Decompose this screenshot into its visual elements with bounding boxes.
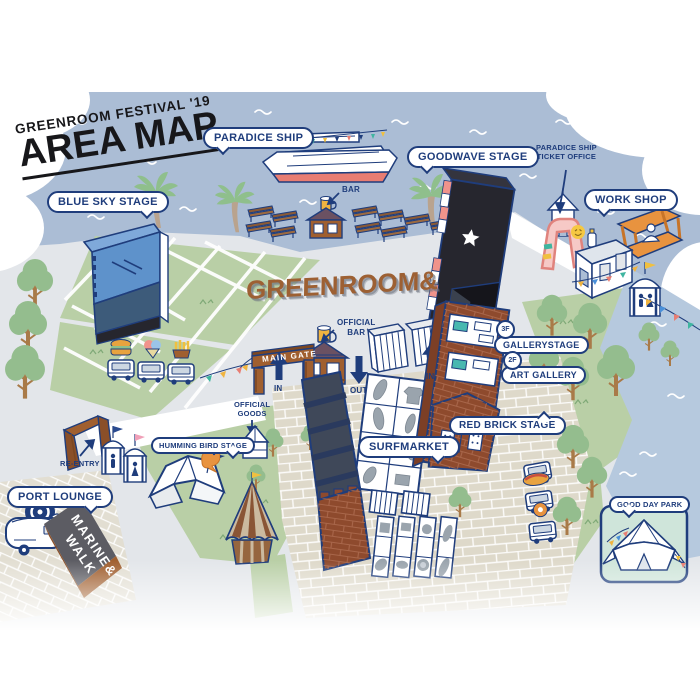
- label-paradice-ship: PARADICE SHIP: [203, 127, 314, 149]
- smiley-icon: [571, 225, 585, 239]
- area-map: GREENROOM FESTIVAL '19 AREA MAP BLUE SKY…: [0, 0, 700, 700]
- label-red-brick-stage: RED BRICK STAGE: [449, 416, 566, 435]
- label-re-entry: RE-ENTRY: [60, 459, 100, 468]
- label-good-day-park: GOOD DAY PARK: [609, 496, 690, 513]
- label-port-lounge: PORT LOUNGE: [7, 486, 113, 508]
- label-gate-out: OUT: [350, 386, 368, 396]
- label-bar: BAR: [342, 185, 360, 195]
- badge-3f: 3F: [496, 320, 515, 339]
- label-goodwave-stage: GOODWAVE STAGE: [407, 146, 539, 168]
- label-ticket-office: PARADICE SHIP TICKET OFFICE: [536, 143, 597, 161]
- blue-sky-stage-building: [84, 224, 168, 344]
- label-humming-bird-stage: HUMMING BIRD STAGE: [151, 437, 255, 454]
- label-surfmarket: SURFMARKET: [358, 436, 460, 458]
- burger-icon: [111, 340, 131, 356]
- label-work-shop: WORK SHOP: [584, 189, 678, 211]
- label-official-goods: OFFICIAL GOODS: [234, 400, 270, 418]
- label-market-in: IN: [426, 372, 434, 382]
- label-gate-in: IN: [274, 384, 282, 394]
- badge-2f: 2F: [503, 351, 522, 370]
- label-official-bar: OFFICIAL BAR: [337, 318, 375, 337]
- label-blue-sky-stage: BLUE SKY STAGE: [47, 191, 169, 213]
